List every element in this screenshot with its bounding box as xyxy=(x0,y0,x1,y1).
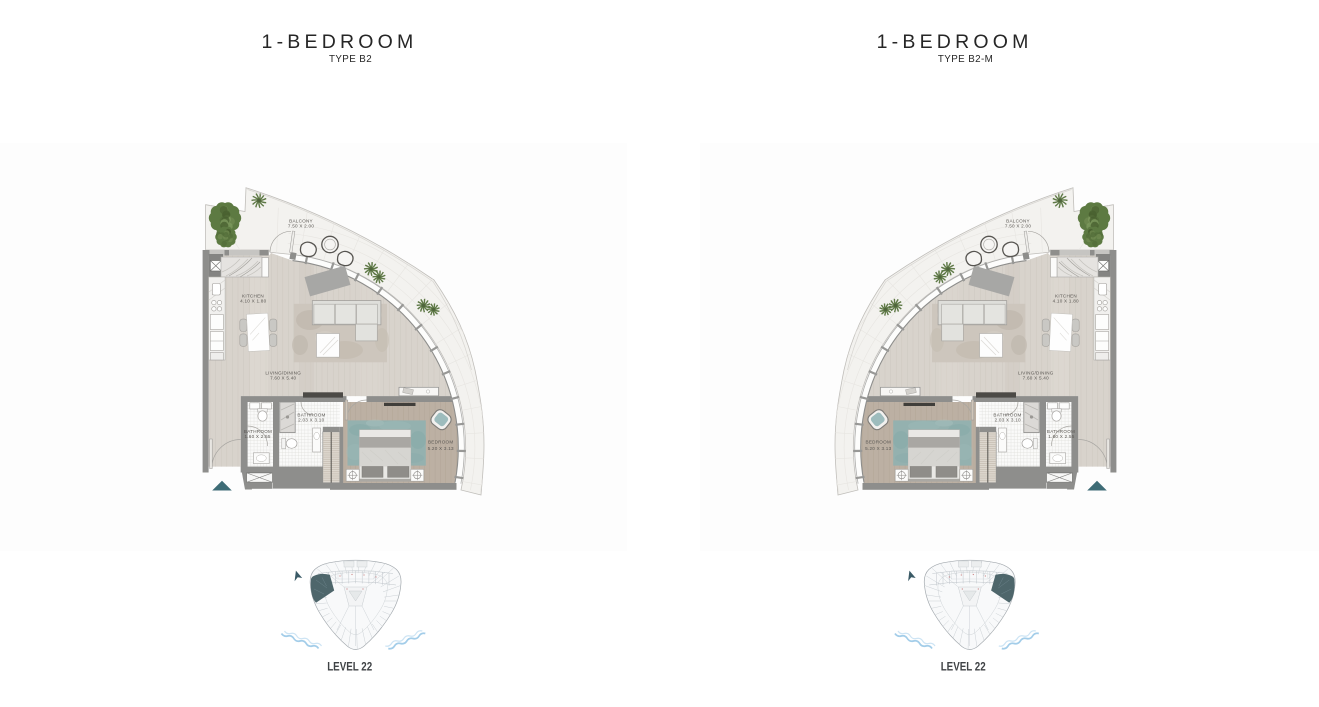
svg-text:7.60 X 5.40: 7.60 X 5.40 xyxy=(1023,375,1049,380)
svg-text:2.03 X 3.10: 2.03 X 3.10 xyxy=(995,418,1021,423)
svg-text:7.50 X 2.00: 7.50 X 2.00 xyxy=(1005,224,1031,229)
svg-text:LEVEL 22: LEVEL 22 xyxy=(327,660,372,674)
svg-text:1.60 X 2.55: 1.60 X 2.55 xyxy=(1048,434,1074,439)
svg-text:4.10 X 1.80: 4.10 X 1.80 xyxy=(240,298,266,303)
svg-text:4.10 X 1.80: 4.10 X 1.80 xyxy=(1053,298,1079,303)
svg-text:1.60 X 2.55: 1.60 X 2.55 xyxy=(244,434,270,439)
svg-text:BEDROOM: BEDROOM xyxy=(428,440,454,445)
svg-text:LEVEL 22: LEVEL 22 xyxy=(941,660,986,674)
svg-text:5.20 X 3.13: 5.20 X 3.13 xyxy=(428,446,454,451)
svg-text:BEDROOM: BEDROOM xyxy=(866,440,892,445)
svg-text:7.60 X 5.40: 7.60 X 5.40 xyxy=(270,375,296,380)
svg-text:7.50 X 2.00: 7.50 X 2.00 xyxy=(288,224,314,229)
svg-text:2.03 X 3.10: 2.03 X 3.10 xyxy=(298,418,324,423)
svg-text:5.20 X 3.13: 5.20 X 3.13 xyxy=(865,446,891,451)
